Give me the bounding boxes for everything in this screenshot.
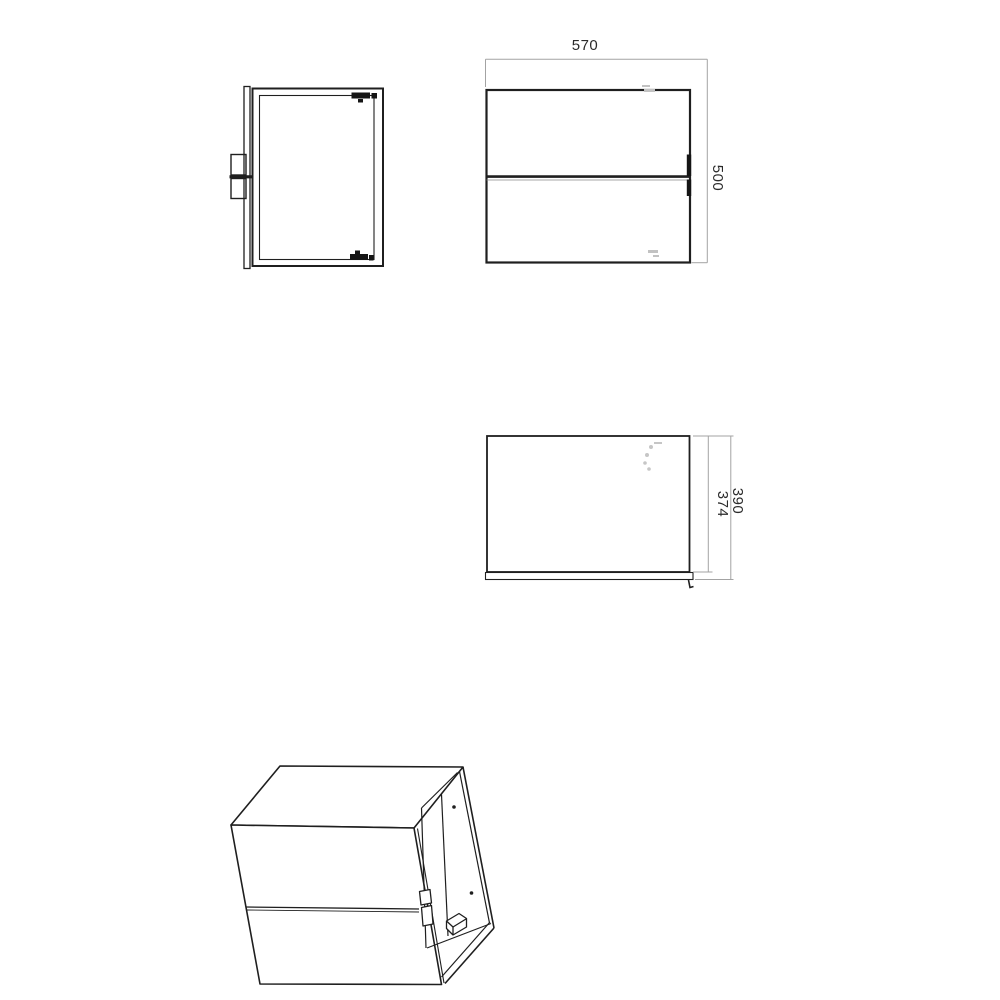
side-view: [230, 87, 384, 269]
faint-annotation: [643, 442, 662, 471]
edge-tab-icon: [687, 155, 691, 197]
dimension-label-depth-inner: 374: [714, 482, 730, 526]
screw-hole-icon: [470, 891, 474, 895]
dimension-label-width: 570: [563, 38, 607, 54]
wall-bracket-icon: [230, 155, 253, 199]
top-view-hook: [689, 580, 694, 588]
drawing-views: [0, 0, 1000, 1000]
technical-drawing-canvas: 570 500 374 390: [0, 0, 1000, 1000]
iso-front-face: [231, 825, 442, 985]
top-view-body: [487, 436, 690, 572]
isometric-view: [231, 766, 494, 985]
front-view: [487, 85, 692, 263]
hinge-bottom-icon: [350, 251, 374, 261]
side-view-body: [253, 89, 384, 267]
dimension-label-depth-outer: 390: [729, 479, 745, 523]
top-view: [486, 436, 694, 588]
dimension-label-height: 500: [709, 156, 725, 200]
faint-annotation: [642, 85, 659, 257]
side-view-body-inner: [260, 96, 375, 260]
iso-top-face: [231, 766, 463, 828]
screw-hole-icon: [452, 805, 456, 809]
top-view-front-strip: [486, 573, 694, 580]
hanging-bracket-icon: [447, 914, 467, 936]
hinge-top-icon: [352, 93, 378, 103]
